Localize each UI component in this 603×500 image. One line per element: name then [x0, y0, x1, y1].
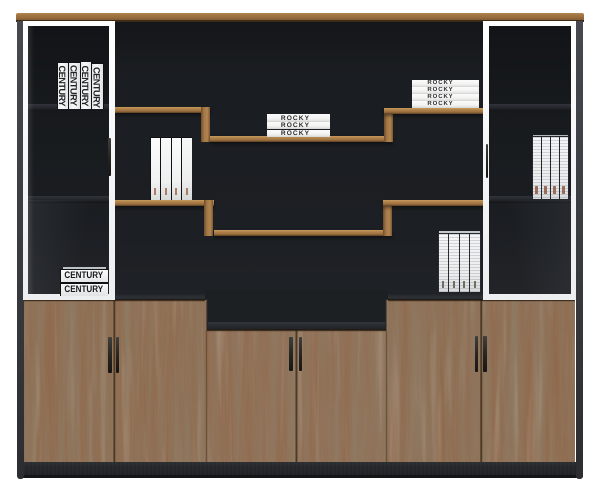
svg-text:CENTURY: CENTURY [92, 67, 102, 108]
svg-text:CENTURY: CENTURY [80, 66, 90, 107]
svg-text:CENTURY: CENTURY [57, 66, 67, 107]
svg-text:CENTURY: CENTURY [69, 65, 79, 106]
